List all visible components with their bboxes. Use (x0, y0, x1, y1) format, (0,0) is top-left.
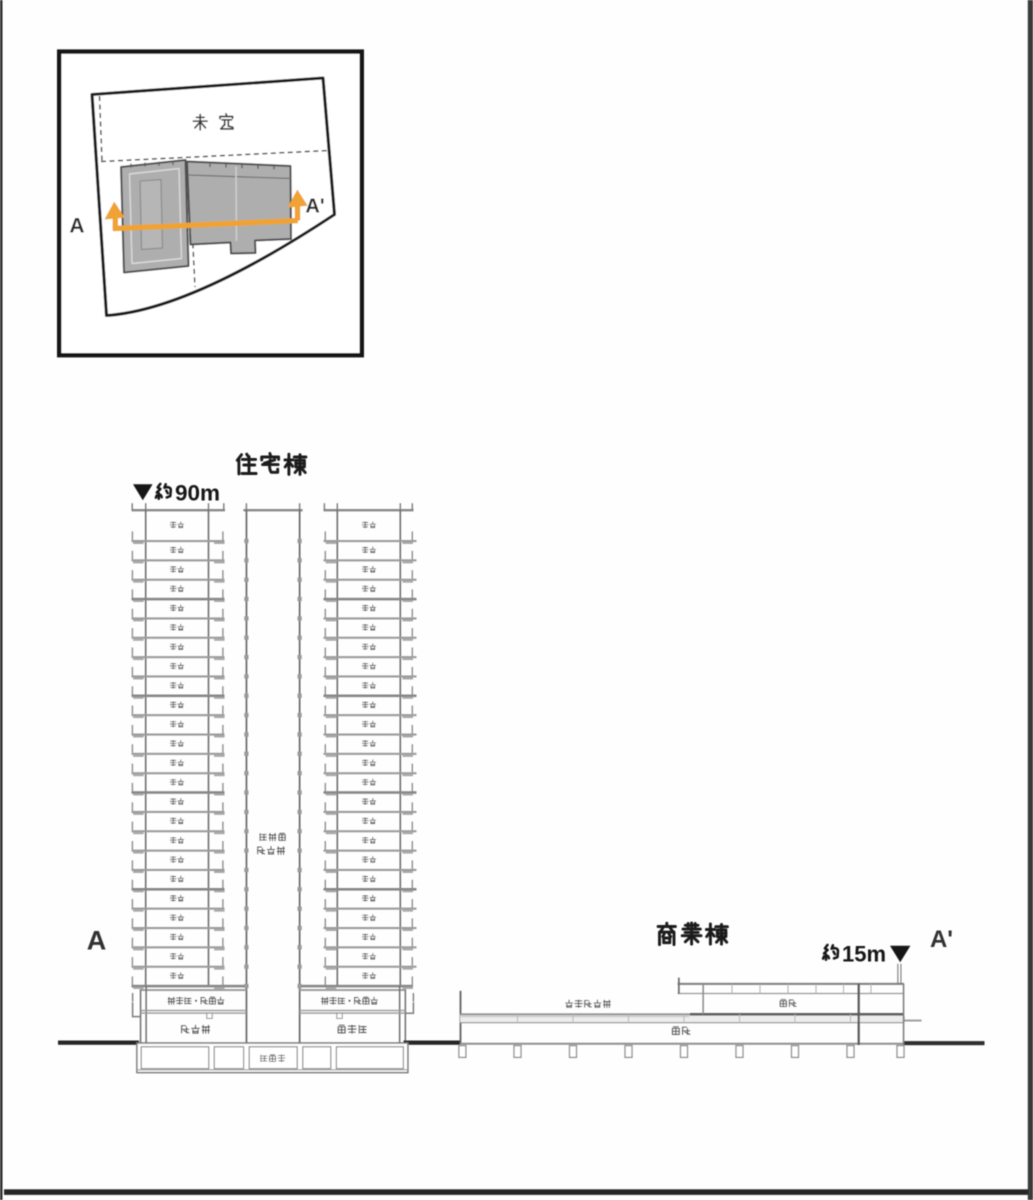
svg-text:A: A (87, 926, 107, 956)
svg-text:A': A' (305, 196, 324, 218)
svg-text:15m: 15m (842, 941, 886, 966)
svg-text:A': A' (930, 926, 953, 953)
svg-text:90m: 90m (175, 481, 220, 506)
svg-text:A: A (69, 215, 84, 238)
